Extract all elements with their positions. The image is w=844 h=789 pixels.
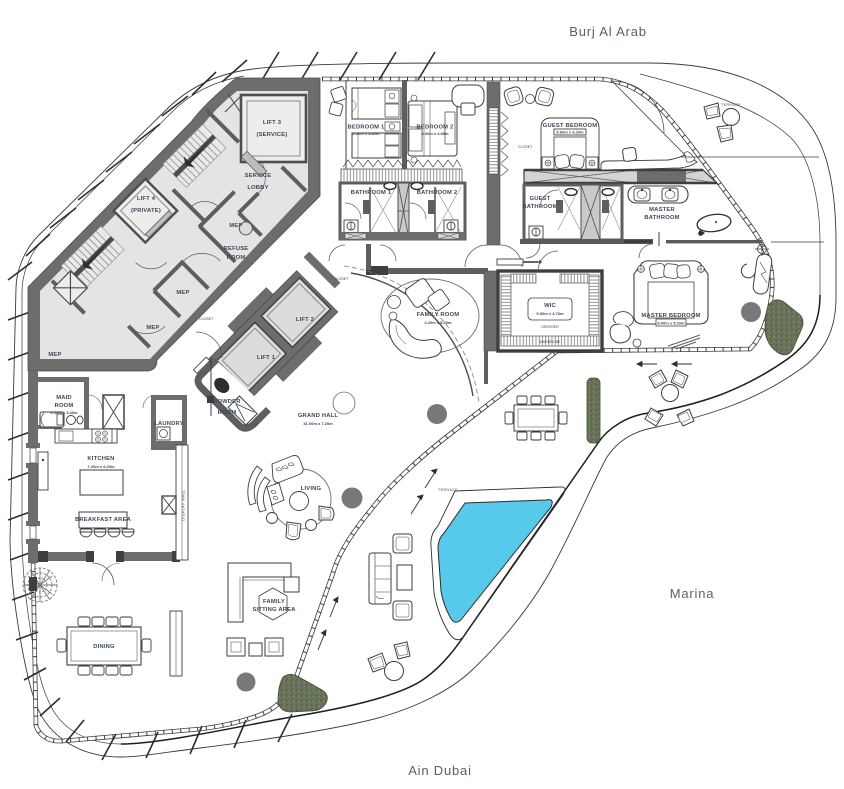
svg-text:ROOM: ROOM — [55, 403, 74, 409]
svg-text:MEP: MEP — [229, 223, 242, 229]
svg-text:TERRACE: TERRACE — [438, 488, 458, 492]
svg-text:Ain Dubai: Ain Dubai — [408, 763, 472, 778]
svg-text:GUEST: GUEST — [530, 196, 551, 202]
svg-text:(PRIVATE): (PRIVATE) — [131, 208, 161, 214]
svg-text:TERRACE: TERRACE — [721, 103, 741, 107]
svg-text:DINING: DINING — [93, 644, 115, 650]
svg-text:BREAKFAST AREA: BREAKFAST AREA — [75, 517, 132, 523]
svg-text:DISPLAY WALL: DISPLAY WALL — [182, 489, 186, 521]
svg-text:MEP: MEP — [146, 325, 159, 331]
svg-text:REFUSE: REFUSE — [224, 246, 249, 252]
svg-text:LIFT 2: LIFT 2 — [296, 317, 314, 323]
svg-text:CLOSET: CLOSET — [199, 317, 214, 321]
svg-text:MAID: MAID — [56, 395, 72, 401]
svg-text:LIFT 1: LIFT 1 — [257, 355, 276, 361]
svg-text:CLOSET: CLOSET — [334, 277, 349, 281]
svg-text:SITTING AREA: SITTING AREA — [252, 607, 296, 613]
svg-text:LIFT 3: LIFT 3 — [263, 120, 282, 126]
svg-text:8.60m x 4.20m: 8.60m x 4.20m — [556, 130, 584, 135]
svg-text:3.50m x 3.40m: 3.50m x 3.40m — [50, 410, 78, 415]
svg-text:LOBBY: LOBBY — [247, 185, 268, 191]
svg-text:(SERVICE): (SERVICE) — [256, 132, 287, 138]
svg-text:BEDROOM 1: BEDROOM 1 — [348, 125, 385, 131]
svg-text:5.00m x 3.70m: 5.00m x 3.70m — [536, 311, 564, 316]
svg-text:GRAND HALL: GRAND HALL — [298, 413, 339, 419]
svg-text:MASTER BEDROOM: MASTER BEDROOM — [641, 313, 700, 319]
svg-text:MEP: MEP — [48, 352, 61, 358]
svg-text:KITCHEN: KITCHEN — [87, 456, 114, 462]
svg-text:WARDROBE: WARDROBE — [539, 340, 561, 344]
svg-text:BATHROOM: BATHROOM — [644, 215, 679, 221]
svg-text:ROOM: ROOM — [227, 255, 246, 261]
svg-text:CLOSET: CLOSET — [518, 145, 533, 149]
svg-text:4.00m x 4.80m: 4.00m x 4.80m — [421, 131, 449, 136]
svg-text:GUEST BEDROOM: GUEST BEDROOM — [543, 123, 597, 129]
svg-text:BATHROOM 2: BATHROOM 2 — [417, 190, 458, 196]
svg-text:WIC: WIC — [544, 303, 556, 309]
svg-text:BEDROOM 2: BEDROOM 2 — [417, 125, 454, 131]
svg-text:SERVICE: SERVICE — [245, 173, 272, 179]
svg-text:9.00m x 5.20m: 9.00m x 5.20m — [657, 321, 685, 326]
svg-text:4.20m x 4.80m: 4.20m x 4.80m — [352, 131, 380, 136]
svg-text:POWDER: POWDER — [213, 399, 241, 405]
svg-text:Marina: Marina — [670, 586, 715, 601]
svg-text:31.00m x 7.20m: 31.00m x 7.20m — [303, 421, 333, 426]
svg-text:Burj Al Arab: Burj Al Arab — [569, 24, 647, 39]
svg-text:LAUNDRY: LAUNDRY — [154, 421, 184, 427]
svg-text:LIFT 4: LIFT 4 — [137, 196, 156, 202]
svg-text:MASTER: MASTER — [649, 207, 675, 213]
svg-text:LIVING: LIVING — [301, 486, 322, 492]
svg-text:BATHROOM 1: BATHROOM 1 — [351, 190, 392, 196]
svg-text:MEP: MEP — [176, 290, 189, 296]
svg-text:FAMILY ROOM: FAMILY ROOM — [417, 312, 459, 318]
svg-text:7.20m x 6.20m: 7.20m x 6.20m — [87, 464, 115, 469]
svg-text:FAMILY: FAMILY — [263, 599, 285, 605]
svg-text:DRESSER: DRESSER — [541, 325, 559, 329]
svg-text:ROOM: ROOM — [218, 410, 237, 416]
svg-text:4.20m x 5.20m: 4.20m x 5.20m — [424, 320, 452, 325]
